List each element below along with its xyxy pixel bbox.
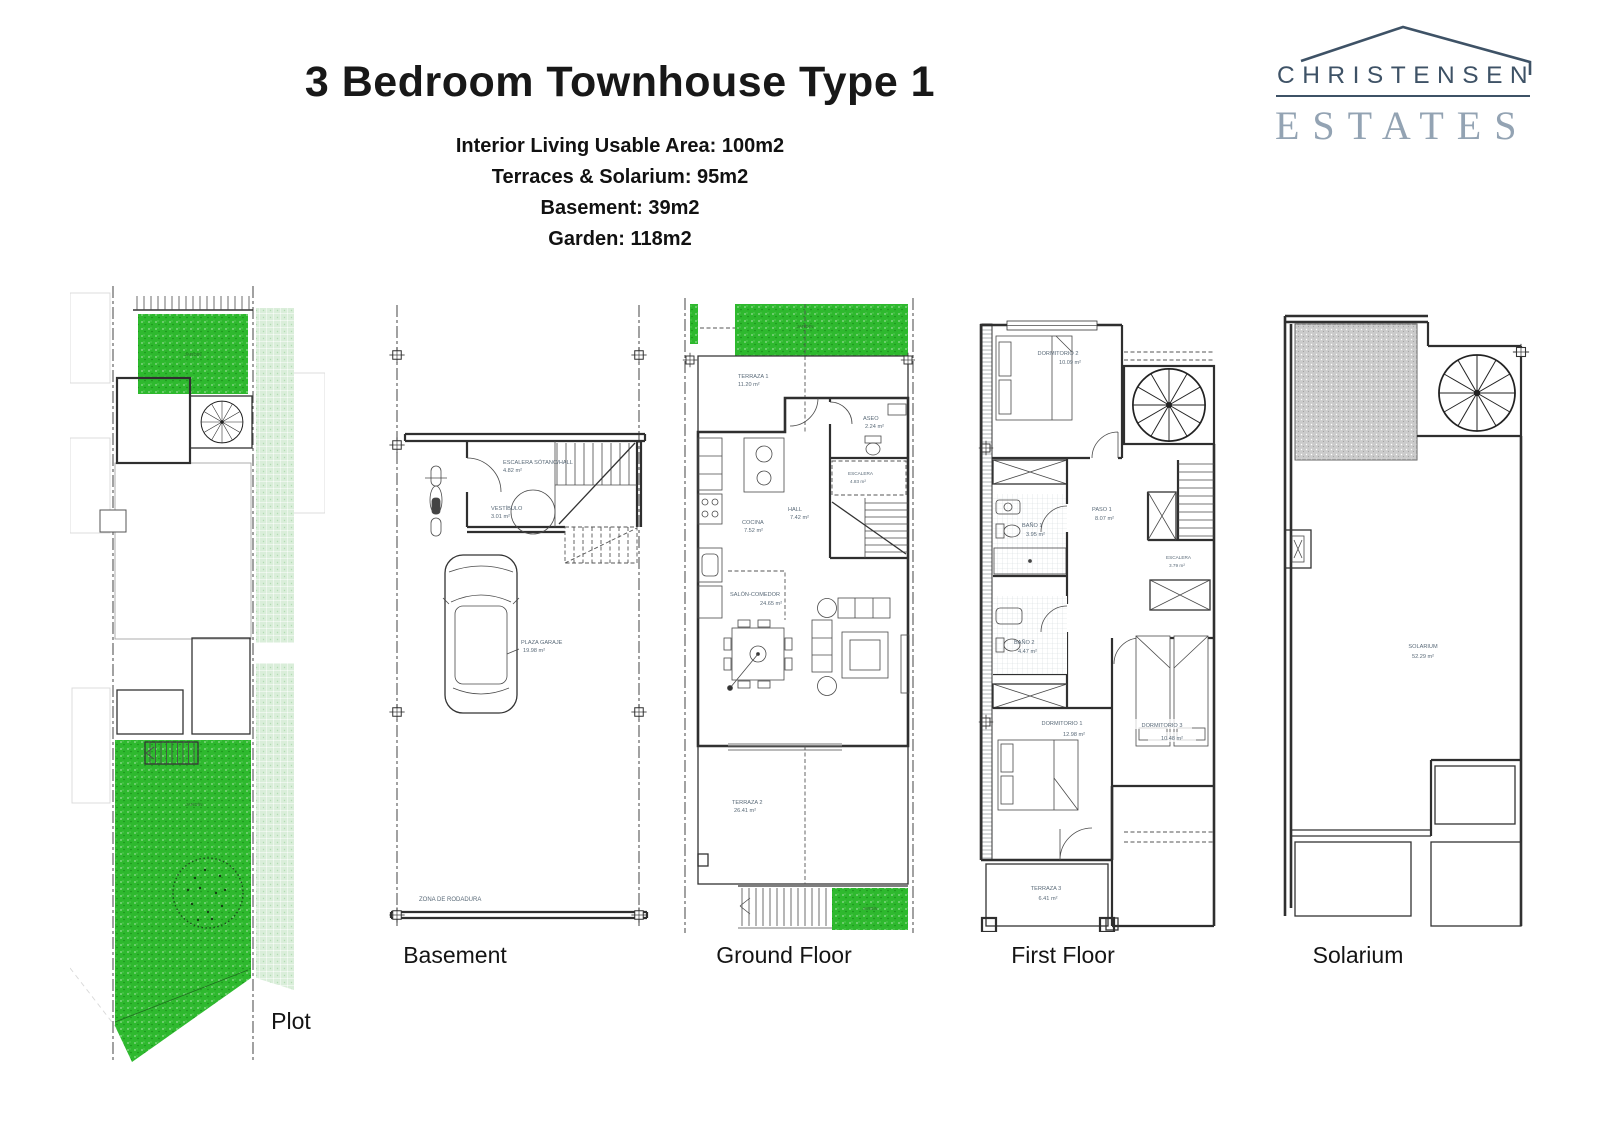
top-fence xyxy=(133,296,253,310)
spec-interior: Interior Living Usable Area: 100m2 xyxy=(0,131,1240,162)
room-area: 26.41 m² xyxy=(734,808,756,814)
sink-icon xyxy=(698,548,722,582)
ground-envelope xyxy=(698,398,908,746)
room-label: BAÑO 1 xyxy=(1022,522,1043,529)
basement-stairs-icon xyxy=(555,441,637,527)
ground-stairs: ESCALERA 4.83 m² xyxy=(830,458,908,558)
logo-name: CHRISTENSEN xyxy=(1277,62,1535,90)
room-label: TERRAZA 3 xyxy=(1031,886,1061,892)
first-floor-plan: DORMITORIO 2 10.09 m² BAÑO 1 3.95 m² PAS… xyxy=(952,308,1217,932)
roof-hatch-icon xyxy=(1285,530,1311,568)
caption-basement: Basement xyxy=(403,942,507,969)
room-label: ASEO xyxy=(863,416,879,422)
room-label: JARDÍN xyxy=(796,323,814,330)
room-label: TERRAZA 2 xyxy=(732,800,762,806)
kitchen-units xyxy=(698,438,784,618)
wardrobe-icon xyxy=(1150,580,1210,610)
room-area: 24.65 m² xyxy=(760,601,782,607)
caption-solarium: Solarium xyxy=(1313,942,1404,969)
bed-single-icon xyxy=(1174,636,1208,746)
logo-divider xyxy=(1276,95,1530,97)
caption-first-floor: First Floor xyxy=(1011,942,1115,969)
spec-garden: Garden: 118m2 xyxy=(0,224,1240,255)
basement-plan: ESCALERA SÓTANO/HALL 4.82 m² VESTÍBULO 3… xyxy=(385,300,660,932)
room-area: 3.01 m² xyxy=(491,514,510,520)
motorcycle-icon xyxy=(425,466,447,536)
room-area: 3.95 m² xyxy=(1026,532,1045,538)
bed-double-icon xyxy=(998,740,1078,810)
stair-void-dashed xyxy=(565,527,637,563)
plot-garden-top-label: JARDÍN xyxy=(184,351,202,358)
wardrobe-icon xyxy=(993,460,1067,484)
wardrobe-icon xyxy=(993,684,1067,708)
toilet-icon xyxy=(865,436,881,455)
room-label: DORMITORIO 3 xyxy=(1142,723,1183,729)
ground-floor-plan: JARDÍN TERRAZA 1 11.20 m² ASEO 2.24 m² xyxy=(680,298,915,935)
page-title: 3 Bedroom Townhouse Type 1 xyxy=(0,58,1240,107)
neighbour-garden xyxy=(256,308,294,643)
logo-type: ESTATES xyxy=(1275,102,1529,149)
room-label: SALÓN-COMEDOR xyxy=(730,591,780,598)
room-label: ESCALERA xyxy=(848,471,874,476)
room-area: 6.41 m² xyxy=(1039,896,1058,902)
room-area: 11.20 m² xyxy=(738,382,760,388)
car-icon xyxy=(443,555,519,713)
spiral-stair-icon xyxy=(1133,369,1205,441)
room-area: 4.47 m² xyxy=(1018,649,1037,655)
room-label: DORMITORIO 2 xyxy=(1038,351,1079,357)
room-label: PLAZA GARAJE xyxy=(521,640,563,646)
room-area: 7.52 m² xyxy=(744,528,763,534)
bed-single-icon xyxy=(1136,636,1170,746)
first-stairs: ESCALERA 3.79 m² xyxy=(1148,460,1214,568)
room-area: 7.42 m² xyxy=(790,515,809,521)
spec-terraces: Terraces & Solarium: 95m2 xyxy=(0,162,1240,193)
sink-icon xyxy=(888,404,906,415)
room-label: ESCALERA xyxy=(1166,555,1192,560)
terrace2 xyxy=(698,746,908,884)
company-logo: CHRISTENSEN ESTATES xyxy=(1262,22,1538,164)
room-area: 52.29 m² xyxy=(1412,654,1434,660)
lower-roof-box xyxy=(1295,842,1411,916)
room-label: COCINA xyxy=(742,520,764,526)
lower-roof-box xyxy=(1431,842,1521,926)
spiral-stair-icon xyxy=(1439,355,1515,431)
lower-roof-box xyxy=(1435,766,1515,824)
room-label: TERRAZA 1 xyxy=(738,374,768,380)
spec-basement: Basement: 39m2 xyxy=(0,193,1240,224)
room-area: 10.48 m² xyxy=(1161,736,1183,742)
room-label: VESTÍBULO xyxy=(491,505,523,512)
room-area: 10.09 m² xyxy=(1059,360,1081,366)
stove-icon xyxy=(698,494,722,524)
plot-plan: JARDÍN JARDÍN xyxy=(70,278,325,1068)
room-area: 4.83 m² xyxy=(850,479,866,484)
room-label: ESCALERA SÓTANO/HALL xyxy=(503,459,573,466)
solarium-plan: SOLARIUM 52.29 m² xyxy=(1255,308,1530,928)
room-area: 3.79 m² xyxy=(1169,563,1185,568)
sofa-set xyxy=(812,598,909,696)
caption-ground-floor: Ground Floor xyxy=(716,942,852,969)
bed-double-icon xyxy=(996,336,1072,420)
caption-plot: Plot xyxy=(271,1008,311,1035)
plot-terrace xyxy=(192,638,250,734)
ground-garden xyxy=(735,304,908,356)
room-area: 4.82 m² xyxy=(503,468,522,474)
room-label: HALL xyxy=(788,507,802,513)
room-area: 19.98 m² xyxy=(523,648,545,654)
dining-table xyxy=(724,620,792,691)
room-area: 12.98 m² xyxy=(1063,732,1085,738)
room-area: 8.07 m² xyxy=(1095,516,1114,522)
roof-area xyxy=(1295,324,1417,460)
room-label: DORMITORIO 1 xyxy=(1042,721,1083,727)
room-label: SOLARIUM xyxy=(1408,644,1438,650)
page: 3 Bedroom Townhouse Type 1 Interior Livi… xyxy=(0,0,1600,1131)
party-wall xyxy=(982,324,992,860)
spec-list: Interior Living Usable Area: 100m2 Terra… xyxy=(0,131,1240,255)
plot-garden-main-label: JARDÍN xyxy=(185,801,203,808)
room-label: JARDÍN xyxy=(862,906,877,911)
room-label: PASO 1 xyxy=(1092,507,1112,513)
room-area: 2.24 m² xyxy=(865,424,884,430)
aseo-room: ASEO 2.24 m² xyxy=(830,398,908,458)
room-label: BAÑO 2 xyxy=(1014,639,1035,646)
spiral-stair-icon xyxy=(201,401,243,443)
room-label: ZONA DE RODADURA xyxy=(419,897,481,903)
